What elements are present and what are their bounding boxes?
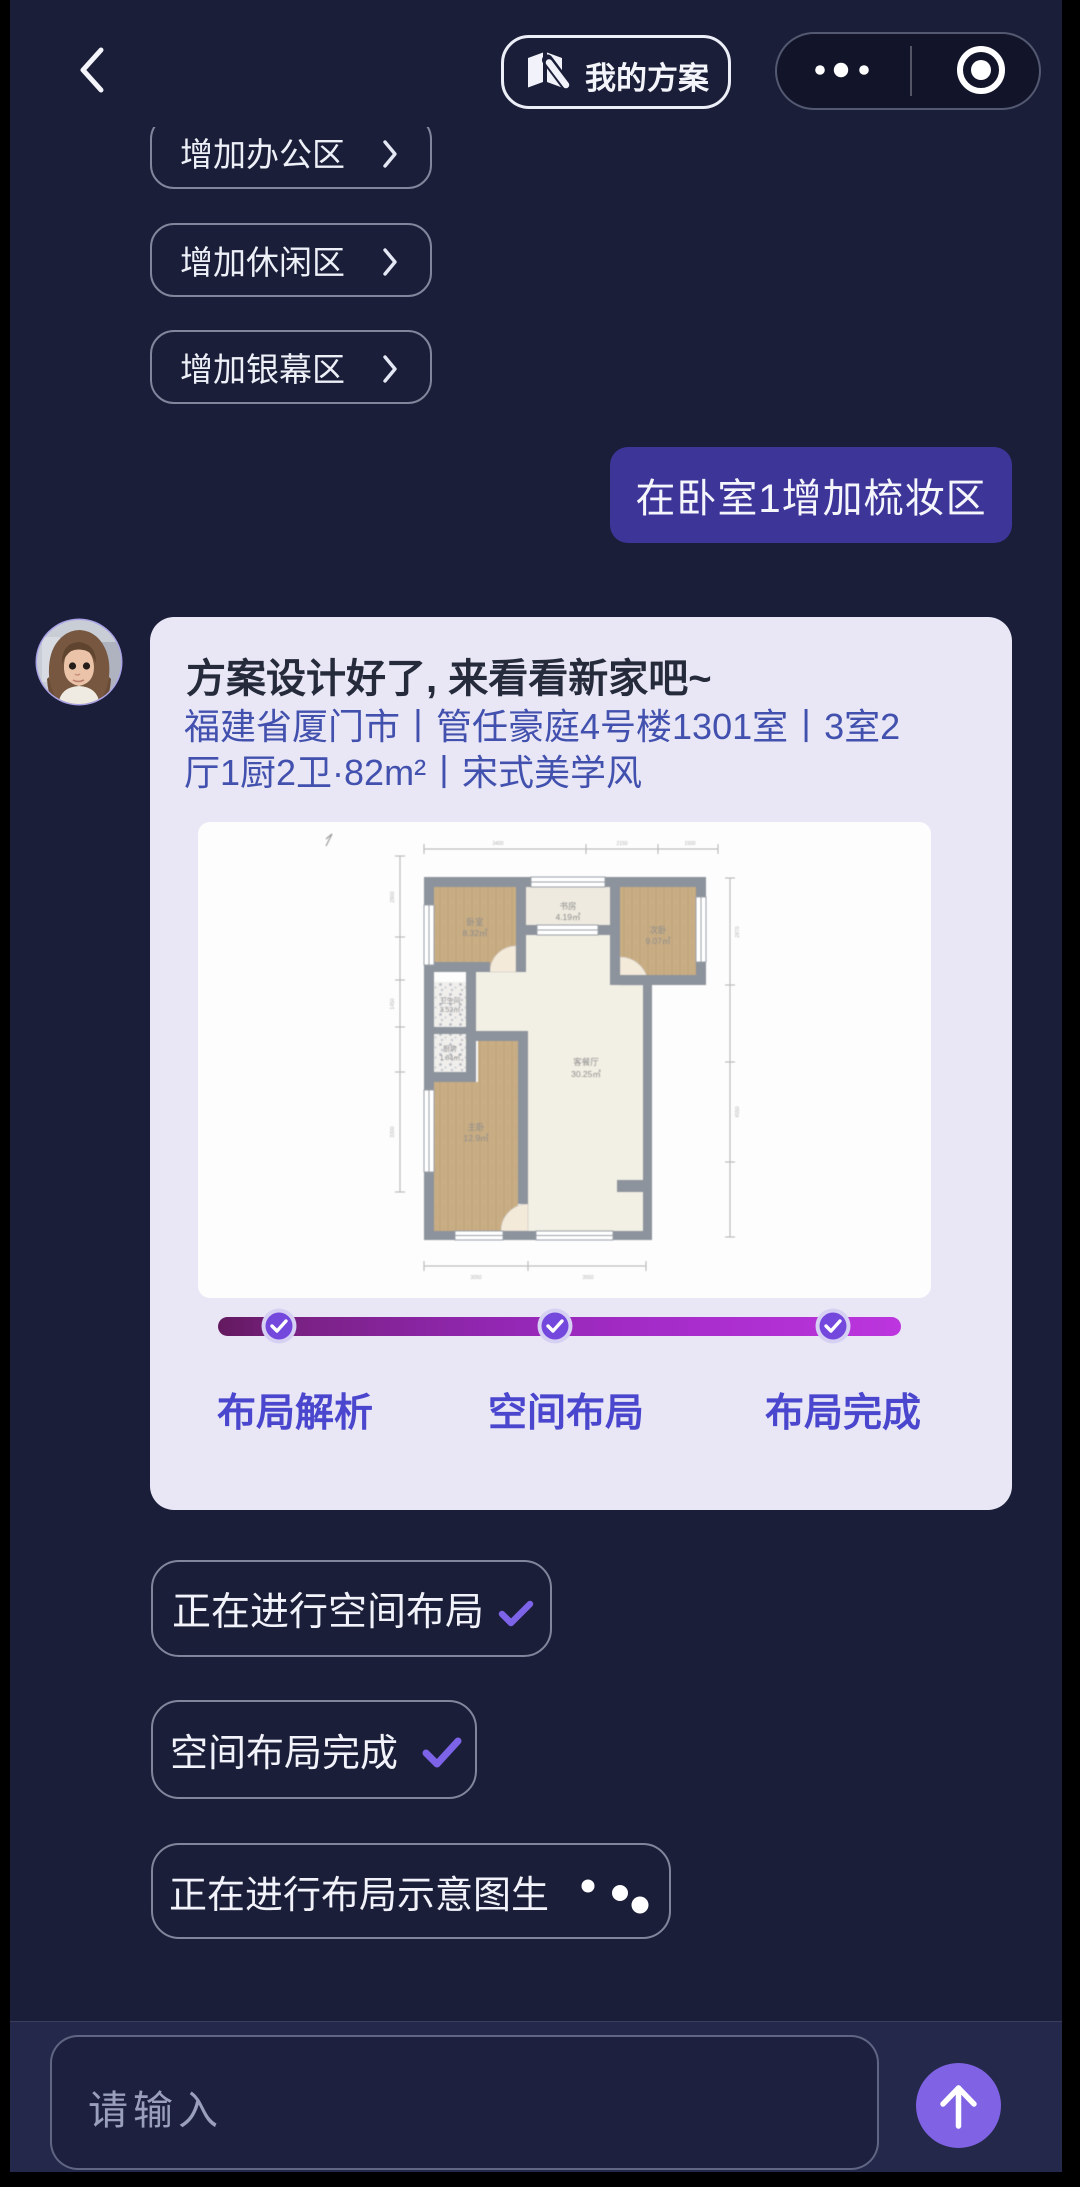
svg-text:主卧: 主卧: [467, 1122, 485, 1132]
svg-text:3400: 3400: [492, 841, 503, 847]
svg-text:书房: 书房: [559, 901, 576, 911]
svg-text:厨房: 厨房: [443, 1044, 457, 1053]
svg-text:1500: 1500: [684, 841, 695, 847]
svg-text:30.25㎡: 30.25㎡: [571, 1069, 601, 1079]
svg-text:2150: 2150: [616, 841, 627, 847]
svg-text:1450: 1450: [390, 998, 396, 1009]
svg-text:2800: 2800: [390, 891, 396, 902]
svg-text:4550: 4550: [735, 1106, 741, 1117]
svg-text:3300: 3300: [390, 1126, 396, 1137]
svg-text:9.07㎡: 9.07㎡: [645, 936, 671, 946]
svg-text:1.84㎡: 1.84㎡: [440, 1054, 461, 1062]
svg-text:卧室: 卧室: [466, 917, 484, 927]
svg-text:12.9㎡: 12.9㎡: [463, 1133, 489, 1143]
svg-text:3550: 3550: [582, 1275, 593, 1281]
svg-text:次卧: 次卧: [649, 925, 667, 935]
svg-text:3050: 3050: [470, 1275, 481, 1281]
svg-text:3.52㎡: 3.52㎡: [440, 1006, 461, 1014]
svg-text:客餐厅: 客餐厅: [573, 1057, 599, 1067]
svg-text:卫生间: 卫生间: [440, 996, 461, 1005]
svg-text:4.19㎡: 4.19㎡: [555, 912, 581, 922]
svg-text:2870: 2870: [735, 926, 741, 937]
svg-text:8.32㎡: 8.32㎡: [462, 928, 488, 938]
